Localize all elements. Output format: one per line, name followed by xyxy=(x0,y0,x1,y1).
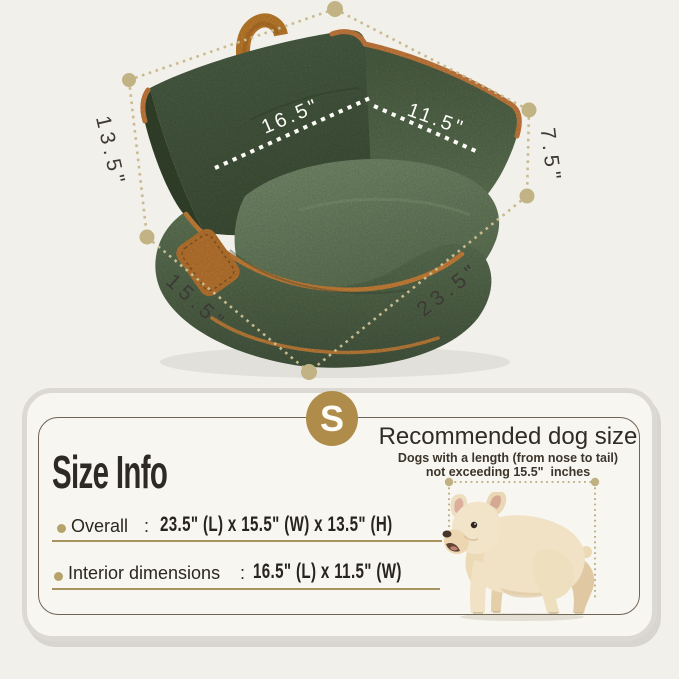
size-info-card: S Size Info Recommended dog size Dogs wi… xyxy=(22,388,657,641)
size-badge: S xyxy=(306,391,358,446)
dog-bed-illustration xyxy=(0,0,679,388)
dog-photo xyxy=(440,492,605,622)
product-photo: 16.5" 11.5" 13.5" 7.5" 15.5" 23.5" xyxy=(0,0,679,388)
